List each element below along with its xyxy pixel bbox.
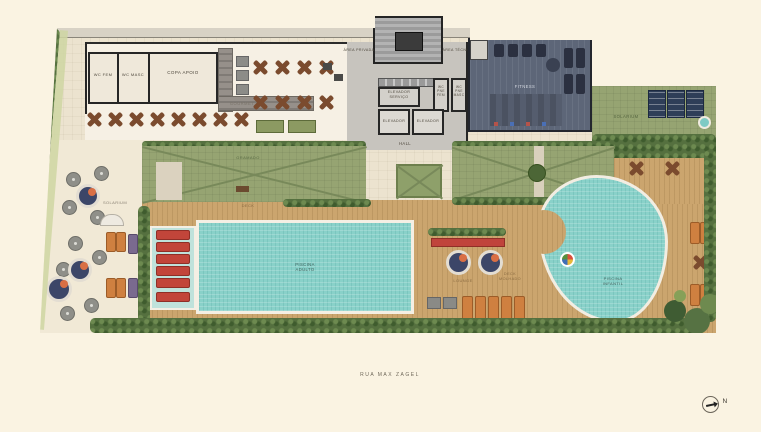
sun-lounger [475, 296, 486, 320]
umbrella-table [628, 160, 644, 176]
wc-fem-label: WC FEM [90, 72, 116, 77]
round-daybed [446, 250, 471, 275]
sun-lounger [106, 232, 116, 252]
umbrella [62, 200, 77, 215]
gym-bench [494, 44, 504, 57]
north-arrow-icon [702, 396, 719, 413]
copa-apoio-label: COPA APOIO [167, 70, 199, 76]
gym-weight [510, 122, 514, 126]
north-label: N [720, 398, 730, 406]
lounge-planter [428, 228, 506, 236]
solarium-beach-label: SOLARIUM [94, 200, 136, 205]
treadmill [576, 74, 585, 94]
shrub [664, 300, 686, 322]
gym-weight [526, 122, 530, 126]
in-water-lounger [156, 230, 190, 240]
sun-lounger [690, 284, 700, 306]
wc-pne-masc-label: WC PNE MASC [452, 85, 466, 97]
side-table [443, 297, 457, 309]
sun-lounger [488, 296, 499, 320]
gym-weight [542, 122, 546, 126]
dining-table [233, 111, 249, 127]
long-table [288, 120, 316, 133]
in-water-lounger [156, 242, 190, 252]
long-table [256, 120, 284, 133]
deck-hedge [283, 199, 371, 207]
dining-table [252, 59, 268, 75]
fitness-storage [470, 40, 488, 60]
dining-table [170, 111, 186, 127]
dining-table [296, 59, 312, 75]
round-daybed [46, 276, 72, 302]
umbrella [84, 298, 99, 313]
sun-lounger [514, 296, 525, 320]
sun-lounger [462, 296, 473, 320]
shrub [674, 290, 686, 302]
treadmill [564, 48, 573, 68]
treadmill [576, 48, 585, 68]
tree [528, 164, 546, 182]
gym-bench [508, 44, 518, 57]
adult-pool: PISCINA ADULTO [196, 220, 414, 314]
shrub [700, 294, 720, 314]
solarium-roof-label: SOLARIUM [604, 114, 648, 119]
side-table [427, 297, 441, 309]
lounger-purple [128, 278, 138, 298]
piscina-adulto-label: PISCINA ADULTO [287, 262, 323, 273]
gym-rug [546, 58, 560, 72]
walkway-planter [396, 164, 442, 198]
dining-table [318, 94, 334, 110]
red-sofa [431, 238, 505, 247]
umbrella [60, 306, 75, 321]
street-label: RUA MAX ZAGEL [320, 372, 460, 379]
wc-pne-fem-label: WC PNE FEM [434, 85, 448, 97]
room-divider-wall [148, 54, 150, 102]
umbrella [68, 236, 83, 251]
gym-weight [494, 122, 498, 126]
pouf [334, 74, 343, 81]
deck-peninsula [522, 210, 566, 254]
pouf [323, 63, 332, 70]
service-rooms-block [88, 52, 218, 104]
sun-lounger [116, 232, 126, 252]
round-daybed [68, 258, 92, 282]
lounge-label: LOUNGE [448, 278, 478, 283]
room-divider-wall [117, 54, 119, 102]
wc-masc-label: WC MASC [119, 72, 147, 77]
site-boundary: WC FEM WC MASC COPA APOIO GOURMET [0, 0, 761, 432]
kids-play-structure [560, 252, 575, 267]
hall-label: HALL [390, 141, 420, 146]
gramado-label: GRAMADO [228, 155, 268, 160]
pool-hedge [138, 206, 150, 332]
in-water-lounger [156, 292, 190, 302]
deck-label: DECK [236, 203, 260, 208]
umbrella-table [664, 160, 680, 176]
elevador-1-label: ELEVADOR [380, 119, 408, 124]
gourmet-left-wall [85, 42, 87, 114]
dining-table [212, 111, 228, 127]
dining-table [128, 111, 144, 127]
sun-lounger [106, 278, 116, 298]
in-water-lounger [156, 266, 190, 276]
dining-table [149, 111, 165, 127]
bar-table [236, 70, 249, 81]
treadmill [564, 74, 573, 94]
piscina-infantil-label: PISCINA INFANTIL [596, 276, 630, 286]
floor-plan: WC FEM WC MASC COPA APOIO GOURMET [0, 0, 761, 432]
bar-table [236, 84, 249, 95]
solar-panel [686, 90, 704, 118]
bench [236, 186, 249, 192]
bottom-hedge [90, 318, 706, 333]
sun-lounger [501, 296, 512, 320]
deck-molhado-label: DECK MOLHADO [496, 272, 524, 282]
elevador-2-label: ELEVADOR [414, 119, 442, 124]
bar-table [236, 56, 249, 67]
dining-table [86, 111, 102, 127]
sun-lounger [116, 278, 126, 298]
umbrella [92, 250, 107, 265]
deck-hedge [452, 197, 556, 205]
gym-bench [536, 44, 546, 57]
dining-table [191, 111, 207, 127]
spa-circle [698, 116, 711, 129]
dining-table [274, 94, 290, 110]
umbrella [66, 172, 81, 187]
umbrella [94, 166, 109, 181]
dining-table [107, 111, 123, 127]
sun-lounger [690, 222, 700, 244]
in-water-lounger [156, 254, 190, 264]
lawn-pad [156, 162, 182, 200]
dining-table [296, 94, 312, 110]
stair-landing [395, 32, 423, 51]
solar-panel [667, 90, 685, 118]
gourmet-label: GOURMET [222, 101, 262, 106]
gym-bench [522, 44, 532, 57]
dining-table [274, 59, 290, 75]
fitness-label: FITNESS [505, 84, 545, 89]
lounger-purple [128, 234, 138, 254]
solar-panel [648, 90, 666, 118]
area-privada-label: ÁREA PRIVADA [342, 48, 376, 53]
in-water-lounger [156, 278, 190, 288]
elevador-servico-label: ELEVADOR SERVIÇO [383, 90, 415, 99]
